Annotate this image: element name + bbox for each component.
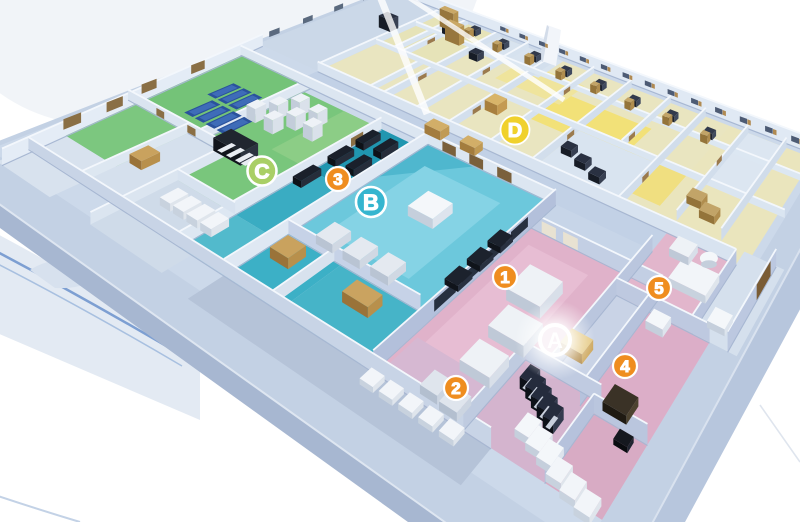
svg-text:5: 5 [654,279,663,298]
svg-text:3: 3 [333,170,342,189]
svg-text:C: C [254,161,269,184]
svg-text:2: 2 [451,379,460,398]
svg-text:4: 4 [620,357,630,376]
svg-text:A: A [547,328,563,353]
svg-text:B: B [363,190,379,215]
svg-text:1: 1 [500,268,509,287]
svg-text:D: D [508,120,522,142]
